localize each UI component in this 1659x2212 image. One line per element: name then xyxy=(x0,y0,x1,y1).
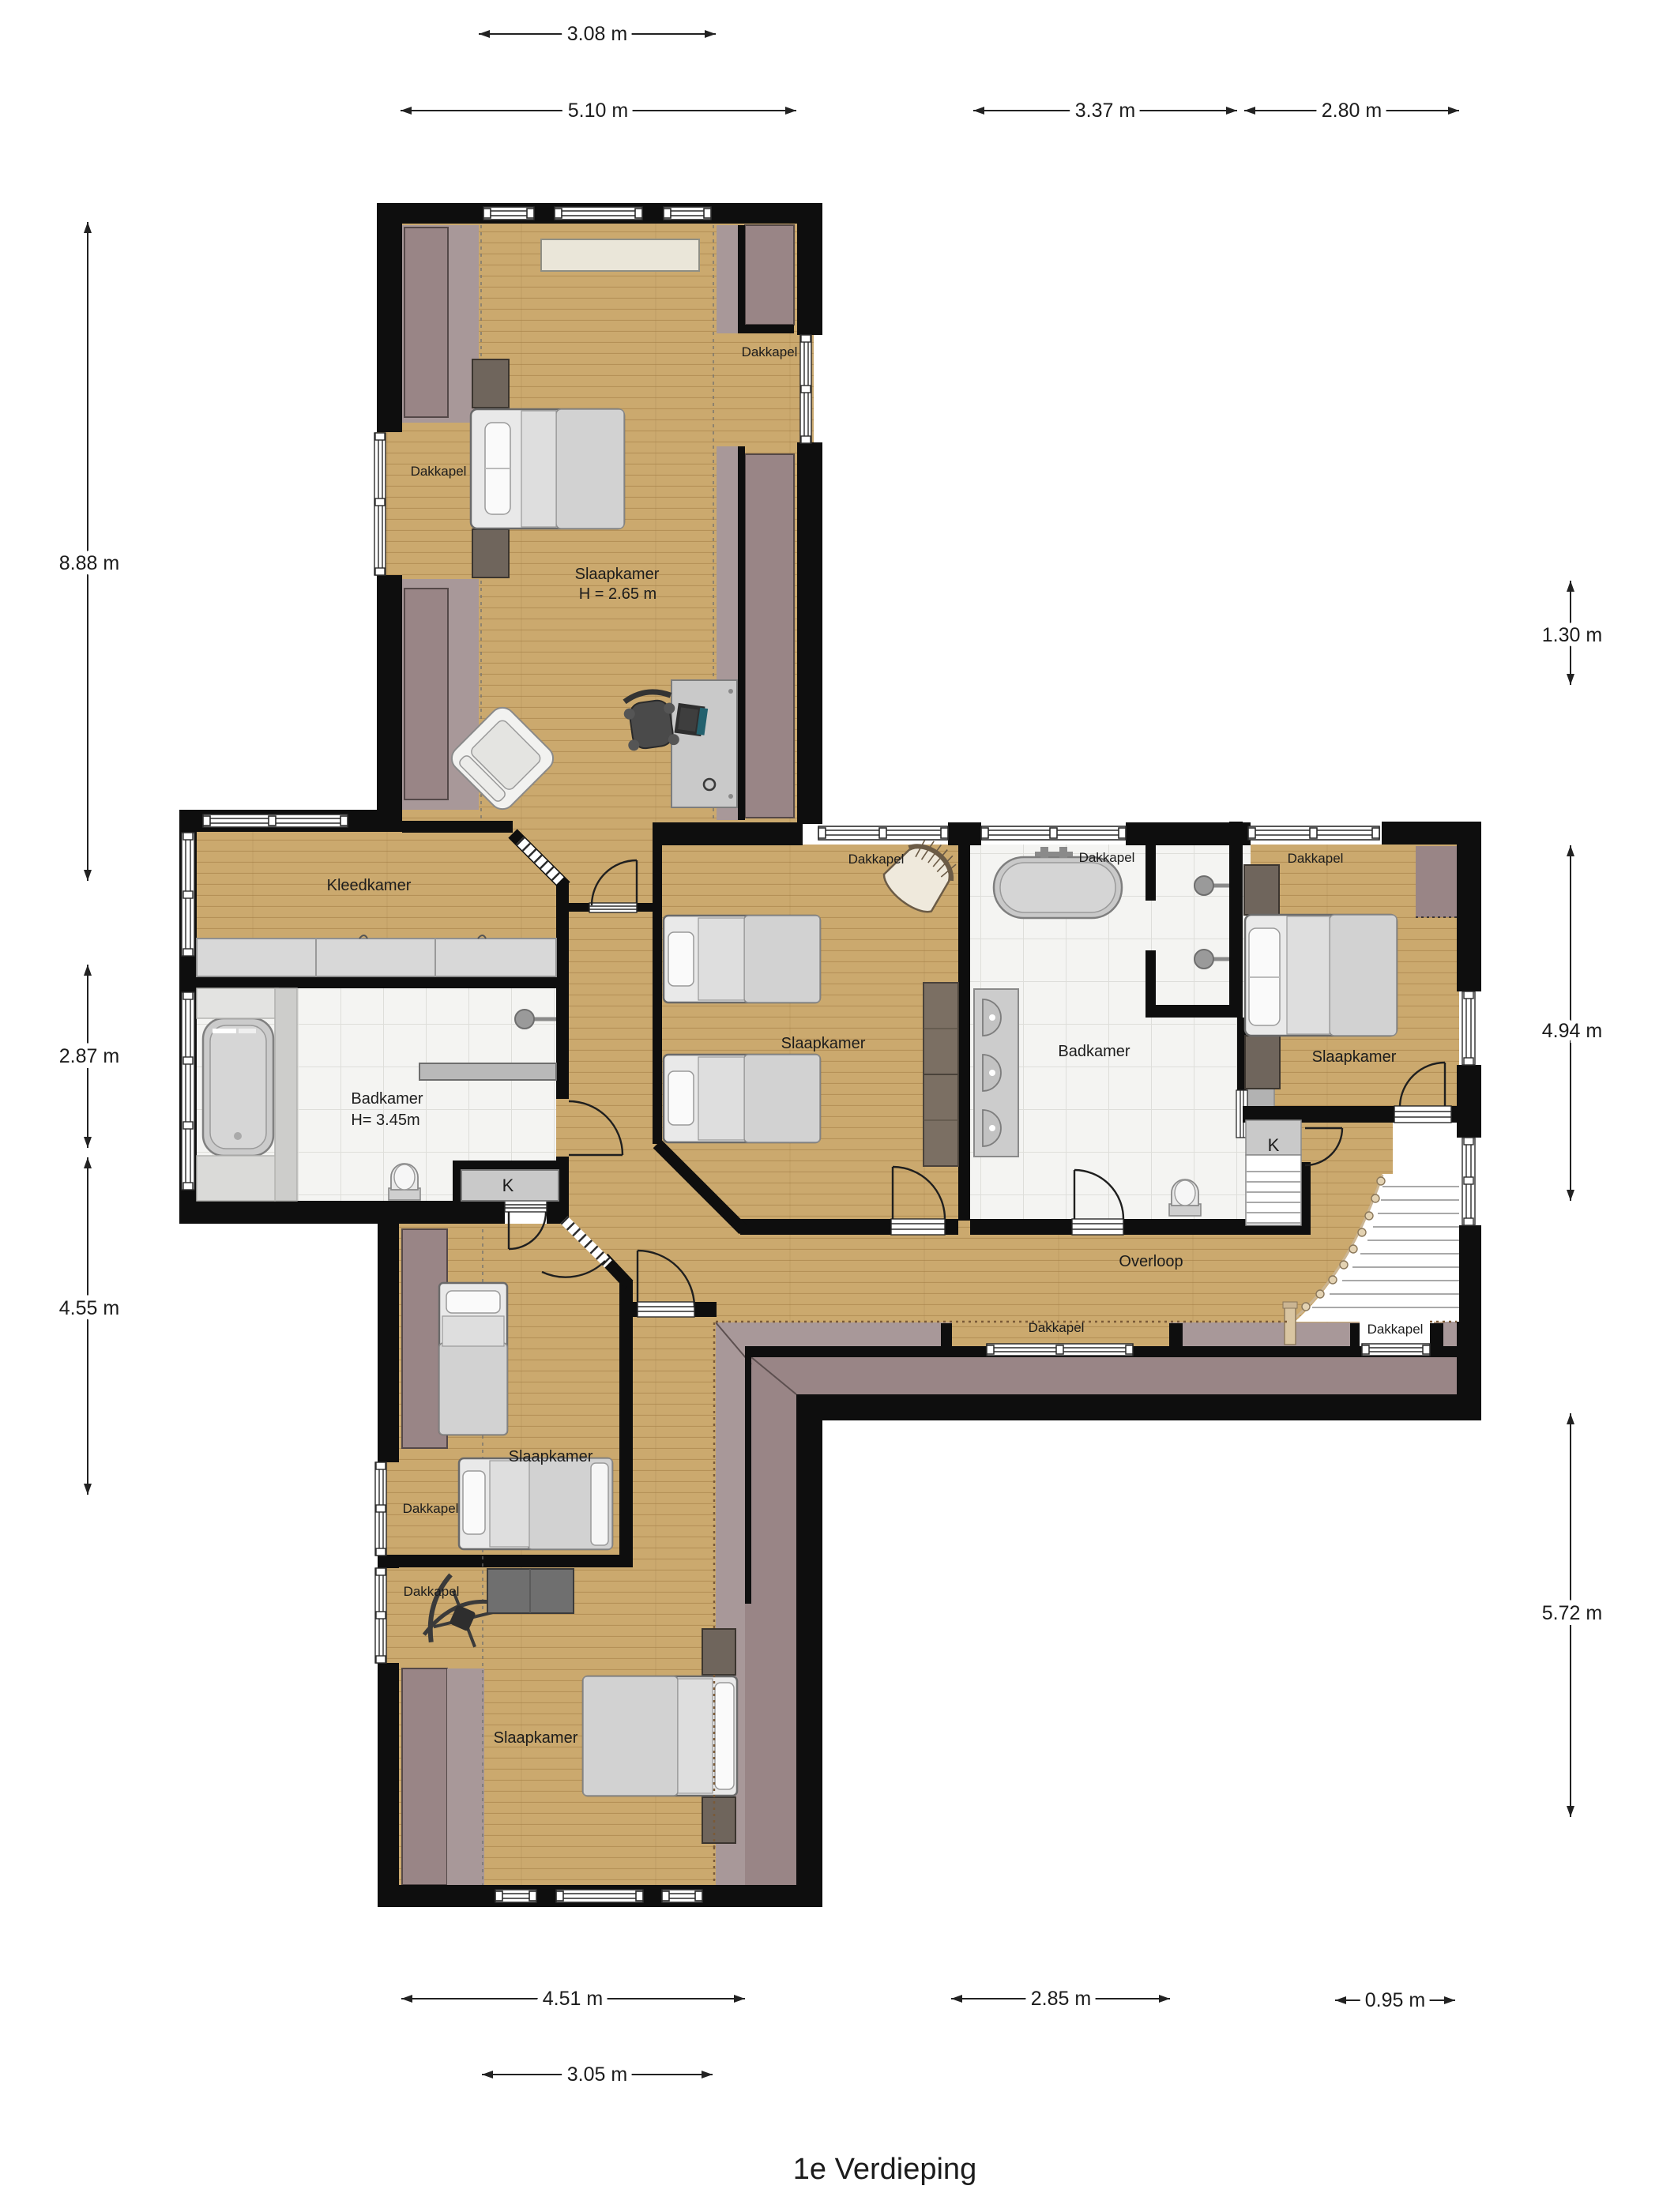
svg-text:4.55 m: 4.55 m xyxy=(59,1297,119,1319)
svg-text:K: K xyxy=(502,1176,514,1195)
svg-text:Slaapkamer: Slaapkamer xyxy=(781,1035,866,1052)
svg-text:H = 2.65 m: H = 2.65 m xyxy=(579,585,656,603)
svg-text:Dakkapel: Dakkapel xyxy=(848,852,905,867)
svg-text:5.72 m: 5.72 m xyxy=(1542,1602,1602,1624)
svg-text:Slaapkamer: Slaapkamer xyxy=(494,1729,578,1747)
svg-text:3.05 m: 3.05 m xyxy=(567,2063,627,2086)
svg-text:Dakkapel: Dakkapel xyxy=(1367,1322,1424,1337)
svg-text:1e Verdieping: 1e Verdieping xyxy=(793,2153,976,2186)
svg-text:4.51 m: 4.51 m xyxy=(543,1988,603,2010)
svg-text:Dakkapel: Dakkapel xyxy=(411,464,467,479)
svg-text:3.37 m: 3.37 m xyxy=(1075,100,1135,122)
svg-text:8.88 m: 8.88 m xyxy=(59,552,119,574)
svg-text:Slaapkamer: Slaapkamer xyxy=(575,566,660,583)
svg-text:Kleedkamer: Kleedkamer xyxy=(327,877,412,894)
svg-text:1.30 m: 1.30 m xyxy=(1542,624,1602,646)
svg-text:2.85 m: 2.85 m xyxy=(1031,1988,1091,2010)
svg-text:0.95 m: 0.95 m xyxy=(1365,1989,1425,2011)
svg-text:Badkamer: Badkamer xyxy=(351,1090,423,1108)
svg-text:2.80 m: 2.80 m xyxy=(1322,100,1382,122)
svg-text:K: K xyxy=(1268,1135,1280,1155)
svg-text:4.94 m: 4.94 m xyxy=(1542,1020,1602,1042)
svg-text:Slaapkamer: Slaapkamer xyxy=(509,1448,593,1465)
svg-text:Dakkapel: Dakkapel xyxy=(404,1584,460,1599)
svg-text:Badkamer: Badkamer xyxy=(1058,1043,1130,1060)
svg-text:H= 3.45m: H= 3.45m xyxy=(351,1112,419,1129)
svg-text:Dakkapel: Dakkapel xyxy=(1029,1320,1085,1335)
svg-text:Overloop: Overloop xyxy=(1119,1253,1183,1270)
svg-text:2.87 m: 2.87 m xyxy=(59,1045,119,1067)
svg-text:Dakkapel: Dakkapel xyxy=(742,344,798,359)
svg-text:Slaapkamer: Slaapkamer xyxy=(1312,1048,1397,1066)
svg-text:3.08 m: 3.08 m xyxy=(567,23,627,45)
svg-text:5.10 m: 5.10 m xyxy=(568,100,628,122)
svg-text:Dakkapel: Dakkapel xyxy=(1288,851,1344,866)
svg-text:Dakkapel: Dakkapel xyxy=(1079,850,1135,865)
svg-text:Dakkapel: Dakkapel xyxy=(403,1501,459,1516)
